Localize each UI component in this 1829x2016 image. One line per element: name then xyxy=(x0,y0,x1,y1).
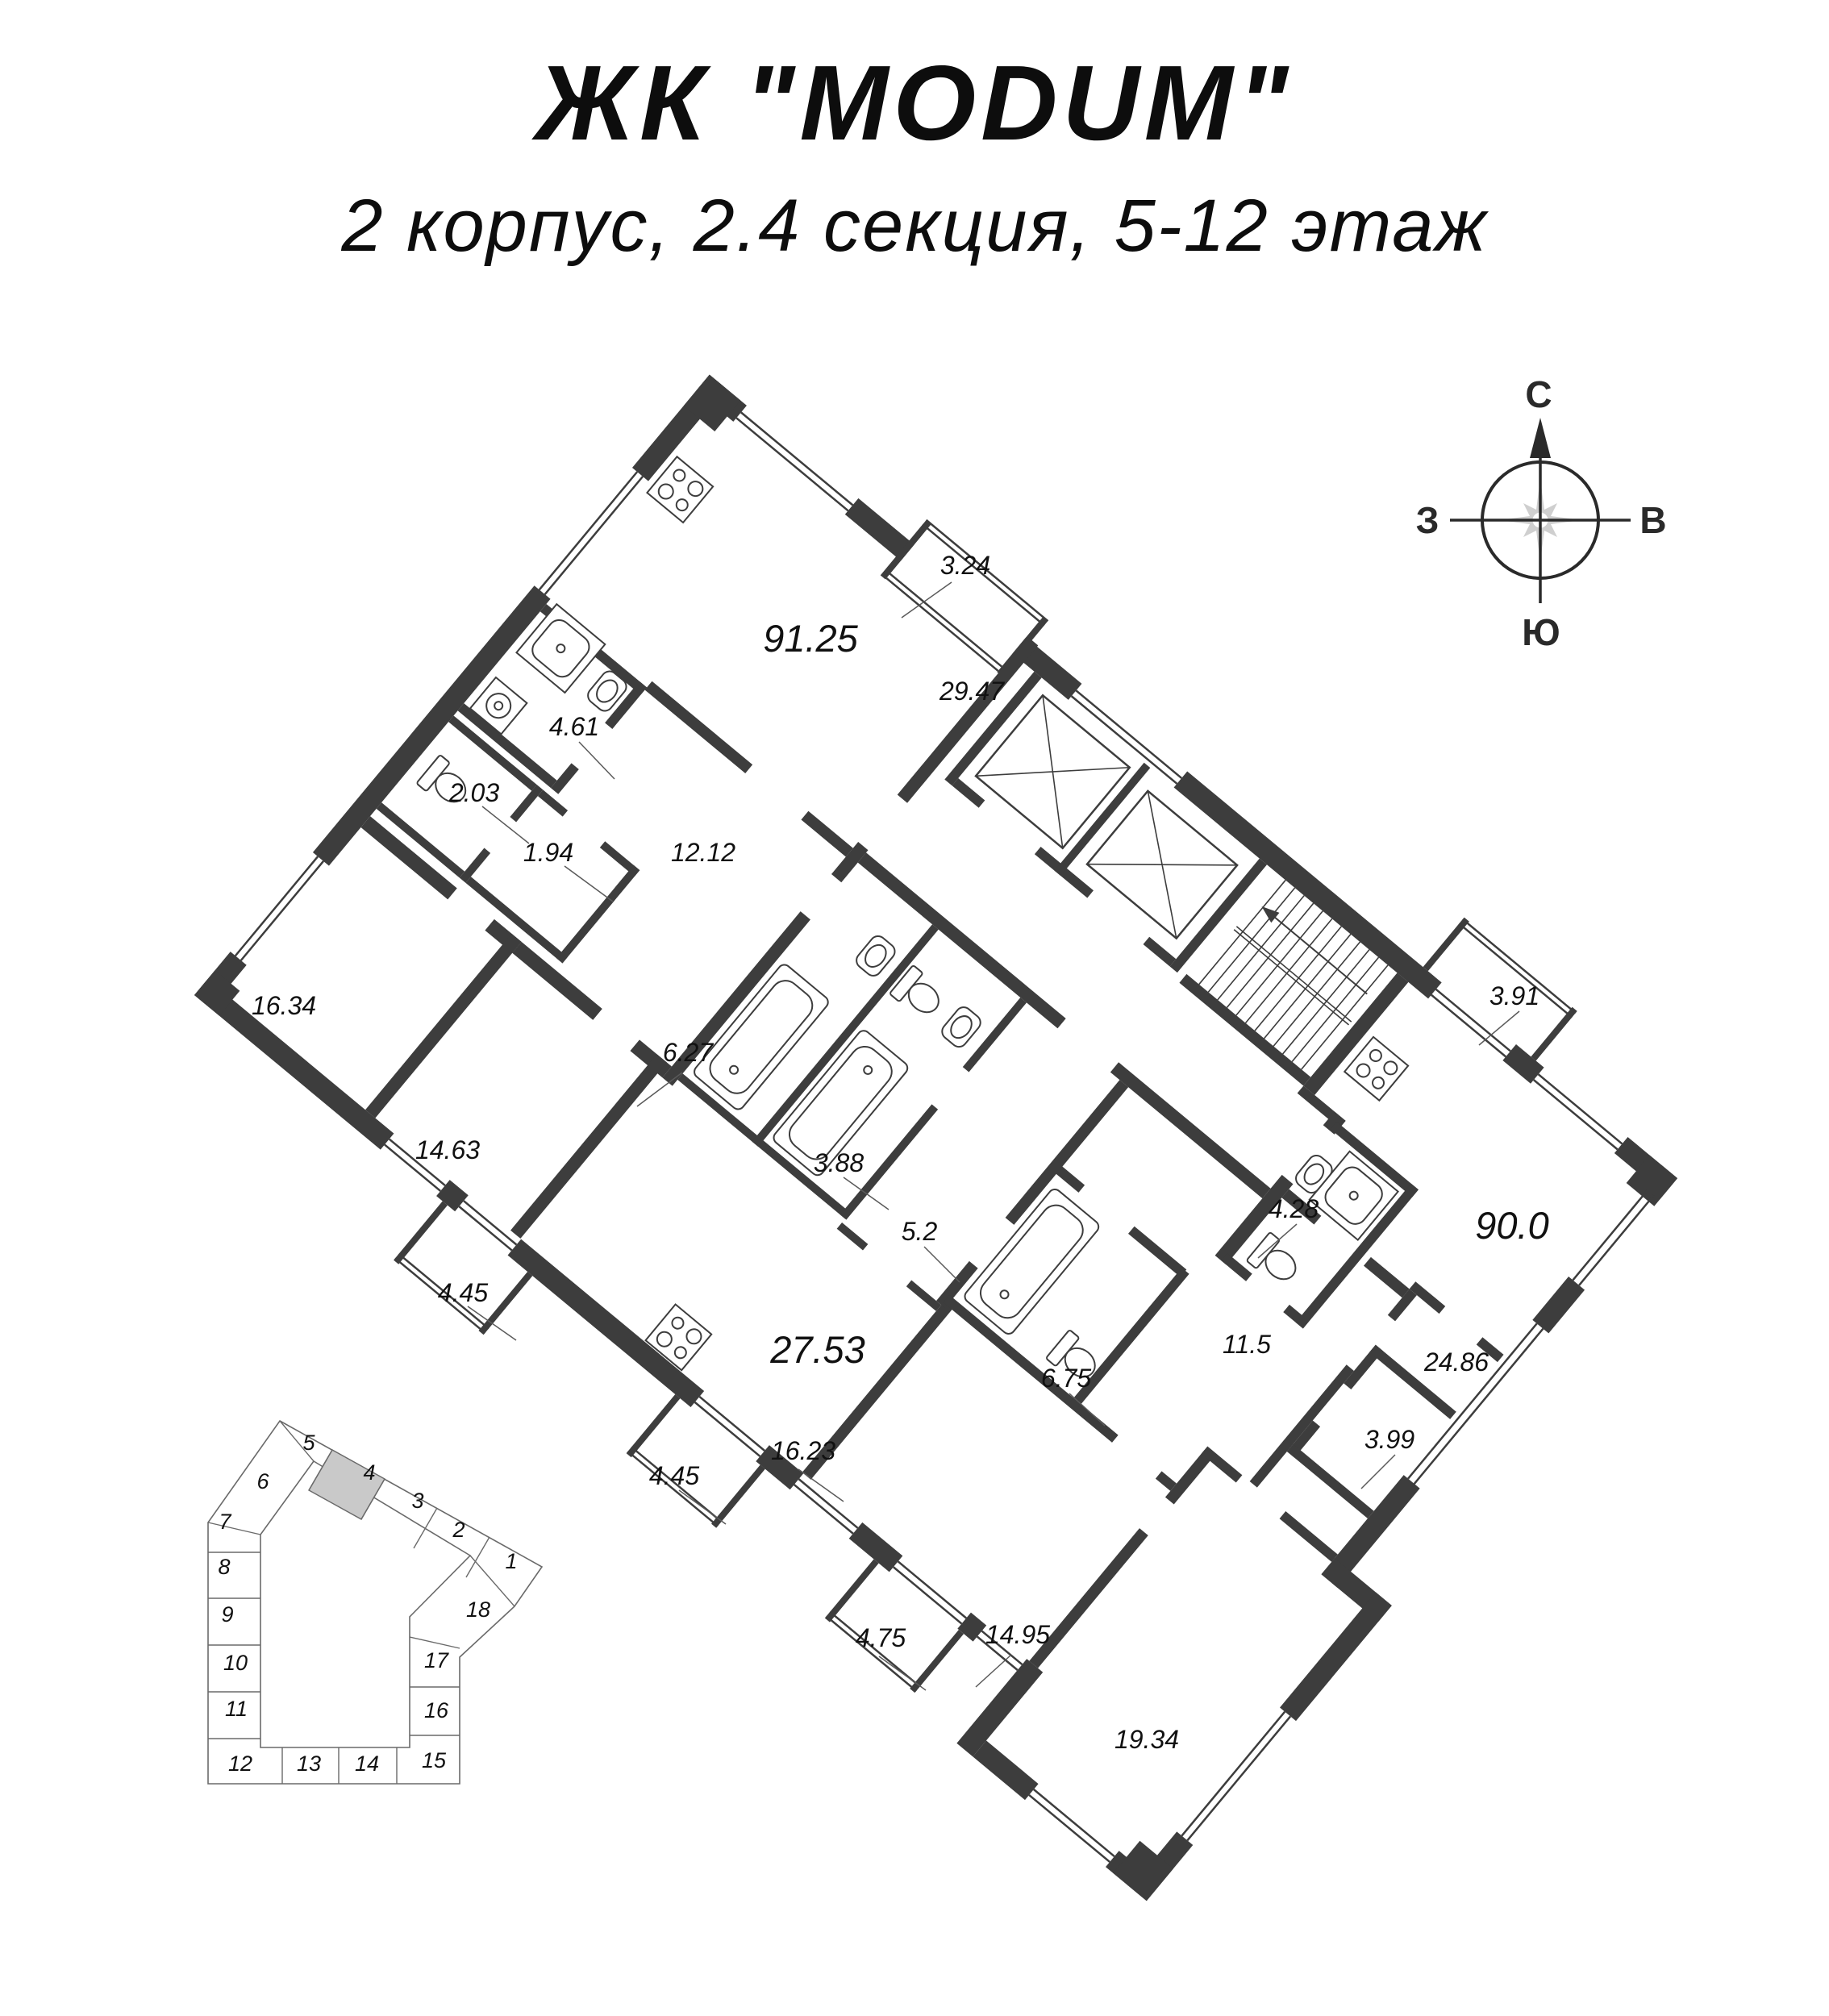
bathtub-icon xyxy=(962,1187,1101,1336)
floor-plan-page: ЖК "MODUM" 2 корпус, 2.4 секция, 5-12 эт… xyxy=(0,0,1829,2016)
site-section-label: 9 xyxy=(221,1602,233,1627)
site-section-label: 16 xyxy=(424,1698,449,1722)
room-area-label: 3.88 xyxy=(814,1148,864,1177)
room-area-label: 4.45 xyxy=(438,1278,488,1307)
room-area-label: 4.75 xyxy=(856,1623,906,1652)
room-area-label: 1.94 xyxy=(523,838,573,867)
site-section-label: 7 xyxy=(219,1510,231,1534)
site-section-label: 10 xyxy=(223,1651,248,1675)
room-area-label: 4.61 xyxy=(549,712,599,741)
sink-icon xyxy=(939,1004,984,1050)
compass-label-west: З xyxy=(1416,499,1439,541)
room-area-label: 2.03 xyxy=(448,778,499,807)
apartment-area-label: 27.53 xyxy=(769,1328,865,1371)
room-area-label: 14.63 xyxy=(415,1135,480,1164)
compass-label-south: Ю xyxy=(1522,611,1560,653)
room-area-label: 19.34 xyxy=(1114,1725,1179,1754)
room-area-label: 14.95 xyxy=(985,1620,1050,1649)
apartment-area-label: 91.25 xyxy=(763,617,858,660)
site-section-label: 4 xyxy=(363,1460,375,1485)
room-area-label: 6.27 xyxy=(663,1038,714,1067)
plan-canvas: 3.24 91.25 29.47 4.61 2.03 1.94 12.12 16… xyxy=(0,0,1829,2016)
site-section-label: 8 xyxy=(218,1555,230,1579)
room-area-label: 24.86 xyxy=(1423,1347,1489,1377)
room-area-label: 29.47 xyxy=(939,677,1005,706)
site-section-label: 17 xyxy=(424,1648,449,1672)
room-area-label: 3.99 xyxy=(1364,1425,1414,1454)
site-section-label: 15 xyxy=(422,1748,447,1772)
room-area-label: 3.24 xyxy=(940,551,990,580)
balcony-445-upper xyxy=(394,1202,532,1335)
sink-icon xyxy=(853,933,898,979)
room-area-label: 5.2 xyxy=(902,1217,938,1246)
compass-label-north: С xyxy=(1525,373,1552,415)
room-area-label: 16.23 xyxy=(771,1436,835,1465)
apartment-area-label: 90.0 xyxy=(1475,1204,1548,1247)
room-area-label: 4.45 xyxy=(649,1461,699,1490)
site-section-label: 18 xyxy=(466,1597,490,1622)
room-area-label: 6.75 xyxy=(1041,1364,1091,1393)
site-section-label: 2 xyxy=(452,1518,465,1542)
site-section-label: 5 xyxy=(302,1431,315,1455)
room-area-label: 11.5 xyxy=(1223,1330,1271,1359)
compass-rose: С Ю З В xyxy=(1416,373,1667,653)
room-area-label: 3.91 xyxy=(1489,981,1539,1010)
room-area-label: 12.12 xyxy=(671,838,735,867)
site-plan-minimap: 1 2 3 4 5 6 7 8 9 10 11 12 13 14 15 16 1… xyxy=(208,1421,542,1784)
site-section-label: 1 xyxy=(505,1549,517,1573)
site-section-label: 13 xyxy=(297,1752,321,1776)
room-area-label: 16.34 xyxy=(252,991,316,1020)
compass-label-east: В xyxy=(1639,499,1666,541)
site-section-label: 3 xyxy=(411,1489,423,1513)
site-section-label: 11 xyxy=(225,1697,248,1721)
compass-north-arrow xyxy=(1530,418,1551,458)
site-section-label: 14 xyxy=(355,1752,379,1776)
toilet-icon xyxy=(1247,1232,1305,1289)
site-section-label: 6 xyxy=(256,1469,269,1493)
site-section-label: 12 xyxy=(228,1752,252,1776)
room-area-label: 4.28 xyxy=(1269,1194,1319,1223)
leader-lines xyxy=(468,582,1519,1690)
